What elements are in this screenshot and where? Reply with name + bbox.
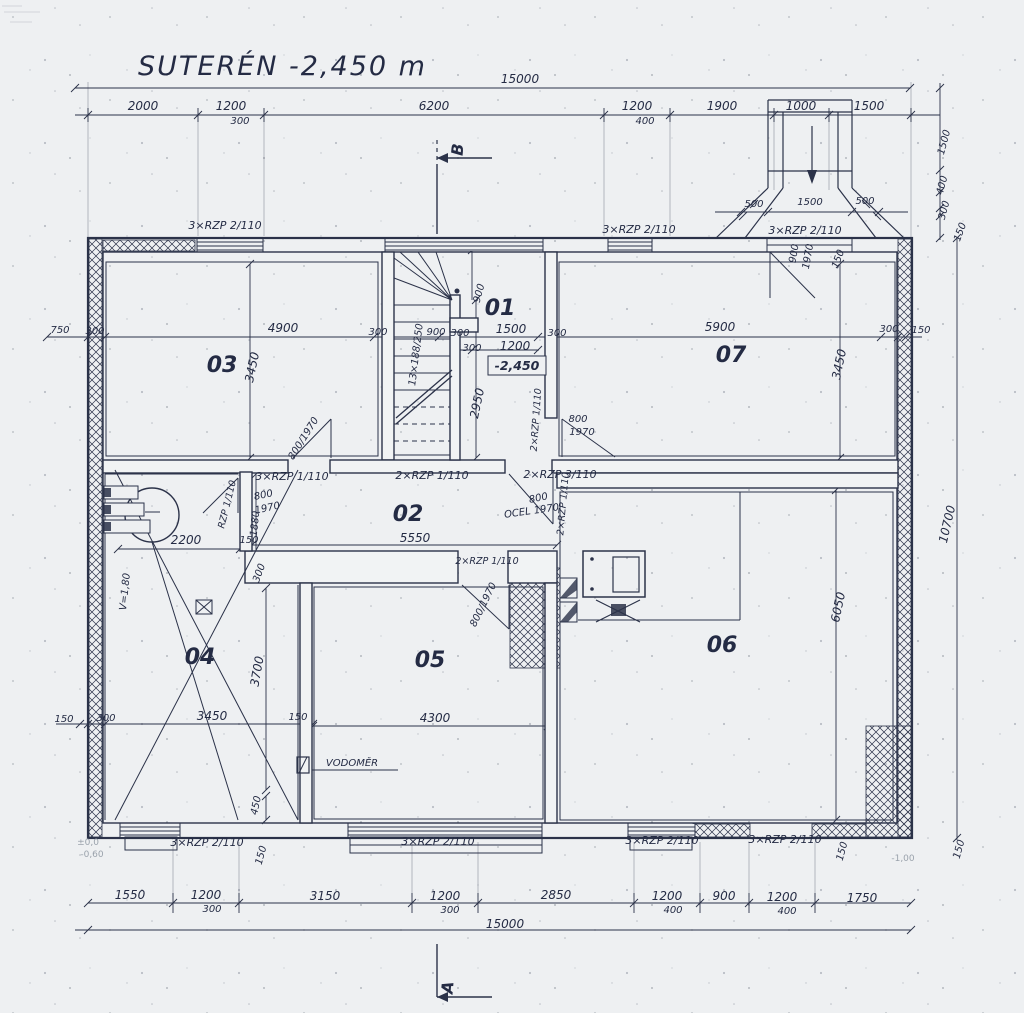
dim-label: 300 — [879, 324, 898, 335]
level-note: -0,60 — [80, 850, 104, 860]
door-size-label: 800 — [568, 414, 587, 425]
dim-label: 300 — [230, 116, 249, 127]
dim-label: 300 — [85, 326, 104, 337]
dim-label: 900 — [713, 889, 736, 903]
level-mark: -2,450 — [495, 358, 540, 373]
dim-label: 1200 — [622, 99, 653, 113]
level-note: ±0,0 — [77, 838, 99, 848]
dim-label: 500 — [744, 199, 763, 210]
room-number-07: 07 — [716, 343, 747, 368]
dim-label: 5900 — [705, 320, 736, 334]
room-number-06: 06 — [707, 633, 738, 658]
dim-label: 1200 — [767, 890, 798, 904]
dim-label: 1200 — [191, 888, 222, 902]
dim-label: 300 — [440, 905, 459, 916]
dim-label: 500 — [855, 196, 874, 207]
dim-label: 300 — [547, 328, 566, 339]
dim-label: 1750 — [847, 891, 878, 905]
lintel-label: 3×RZP 2/110 — [602, 223, 675, 236]
lintel-label: 3×RZP 2/110 — [625, 834, 698, 847]
dim-label: 2200 — [171, 533, 202, 547]
dim-label: 2850 — [541, 888, 572, 902]
dim-label: 300 — [96, 713, 115, 724]
stair-start-dot — [455, 289, 460, 294]
dim-label: 400 — [777, 906, 796, 917]
room-number-03: 03 — [207, 353, 238, 378]
section-marker-b: B — [448, 143, 468, 157]
lintel-label: 2×RZP 1/110 — [395, 469, 468, 482]
dim-label: 150 — [239, 535, 258, 546]
dim-label: 150 — [911, 325, 930, 336]
dim-label: 300 — [450, 328, 469, 339]
dim-label: 1500 — [854, 99, 885, 113]
dim-label: 150 — [54, 714, 73, 725]
dim-label: 1200 — [652, 889, 683, 903]
dim-label: 3450 — [197, 709, 228, 723]
drawing-title: SUTERÉN -2,450 m — [138, 50, 427, 82]
vodomer-label: VODOMĚR — [326, 756, 378, 769]
dim-label: 400 — [663, 905, 682, 916]
dim-label: 1970 — [569, 427, 594, 438]
dim-label: 1200 — [500, 339, 531, 353]
dim-label: 300 — [202, 904, 221, 915]
dim-label: 2000 — [128, 99, 159, 113]
lintel-label: 3×RZP 2/110 — [170, 836, 243, 849]
dim-label: 1000 — [786, 99, 817, 113]
dim-label: 1200 — [430, 889, 461, 903]
dim-label: 4300 — [420, 711, 451, 725]
room-number-05: 05 — [415, 648, 446, 673]
level-note: -1,00 — [891, 854, 915, 864]
lintel-label: 3×RZP 2/110 — [768, 224, 841, 237]
dim-label: 1200 — [216, 99, 247, 113]
lintel-label: 2×RZP 1/110 — [455, 556, 518, 567]
lintel-label: 3×RZP 1/110 — [255, 470, 328, 483]
scanned-floor-plan: SUTERÉN -2,450 m150002000120030062001200… — [0, 0, 1024, 1013]
paper-speckle — [0, 0, 1024, 1013]
floor-plan-svg: SUTERÉN -2,450 m150002000120030062001200… — [0, 0, 1024, 1013]
dim-label: 400 — [635, 116, 654, 127]
dim-label: 1500 — [797, 197, 822, 208]
room-number-02: 02 — [393, 502, 424, 527]
dim-label: 750 — [50, 325, 69, 336]
lintel-label: 3×RZP 2/110 — [748, 833, 821, 846]
step-blocks — [104, 488, 111, 531]
dim-label: 300 — [462, 343, 481, 354]
dim-label: 6200 — [419, 99, 450, 113]
dim-label: 15000 — [486, 917, 525, 931]
dim-label: 300 — [368, 327, 387, 338]
dim-label: 3150 — [310, 889, 341, 903]
dim-label: 900 — [426, 327, 445, 338]
dim-label: 1500 — [496, 322, 527, 336]
dim-label: 15000 — [501, 72, 540, 86]
dim-label: 5550 — [400, 531, 431, 545]
dim-label: 150 — [288, 712, 307, 723]
lintel-label: 3×RZP 2/110 — [401, 835, 474, 848]
dim-label: 1550 — [115, 888, 146, 902]
room-number-04: 04 — [185, 645, 216, 670]
dim-label: 1900 — [707, 99, 738, 113]
dim-label: 4900 — [268, 321, 299, 335]
room-number-01: 01 — [485, 296, 516, 321]
lintel-label: 3×RZP 2/110 — [188, 219, 261, 232]
